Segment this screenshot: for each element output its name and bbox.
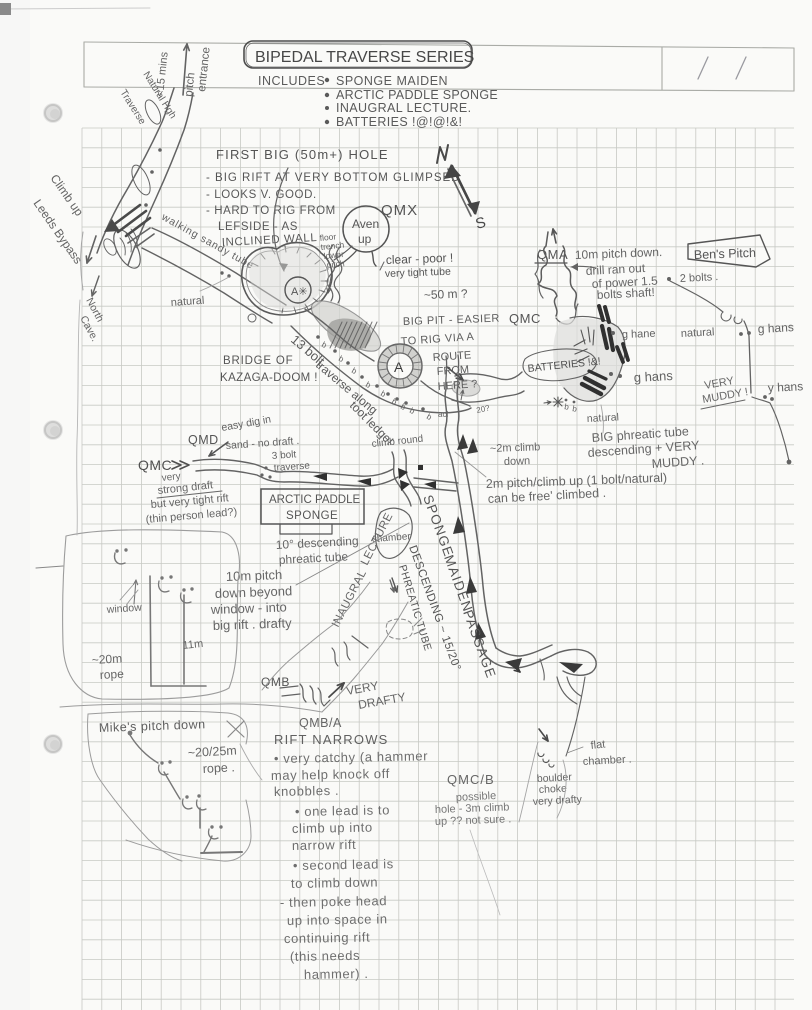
svg-text:A✳: A✳ bbox=[291, 286, 308, 298]
svg-text:KAZAGA-DOOM !: KAZAGA-DOOM ! bbox=[220, 372, 318, 384]
svg-text:2 bolts .: 2 bolts . bbox=[680, 271, 719, 285]
svg-text:INCLUDES: INCLUDES bbox=[258, 74, 325, 88]
svg-text:g hans: g hans bbox=[757, 320, 794, 336]
svg-text:LEFSIDE - AS: LEFSIDE - AS bbox=[218, 221, 298, 233]
svg-text:QMD: QMD bbox=[188, 433, 219, 447]
svg-text:• very catchy (a hammer: • very catchy (a hammer bbox=[274, 748, 428, 766]
svg-text:3 bolt: 3 bolt bbox=[271, 449, 296, 462]
svg-text:BATTERIES !@!@!&!: BATTERIES !@!@!&! bbox=[336, 115, 462, 129]
svg-text:hammer) .: hammer) . bbox=[304, 966, 369, 982]
svg-text:A: A bbox=[394, 359, 404, 375]
svg-text:down: down bbox=[504, 455, 531, 468]
svg-text:BRIDGE OF: BRIDGE OF bbox=[223, 355, 293, 367]
svg-text:• one lead is to: • one lead is to bbox=[295, 802, 390, 819]
svg-text:big rift . drafty: big rift . drafty bbox=[213, 615, 293, 633]
svg-text:may help knock off: may help knock off bbox=[271, 766, 390, 783]
svg-text:QMC: QMC bbox=[509, 311, 541, 326]
svg-text:RIFT NARROWS: RIFT NARROWS bbox=[274, 732, 389, 747]
svg-text:11m: 11m bbox=[182, 638, 204, 652]
svg-text:QMC: QMC bbox=[138, 457, 172, 473]
svg-text:QMX: QMX bbox=[381, 202, 418, 219]
svg-text:10m pitch: 10m pitch bbox=[226, 567, 283, 584]
svg-text:INAUGRAL LECTURE.: INAUGRAL LECTURE. bbox=[336, 101, 472, 115]
svg-text:(this needs: (this needs bbox=[290, 948, 360, 964]
svg-text:Aven: Aven bbox=[352, 217, 379, 231]
svg-text:~50 m ?: ~50 m ? bbox=[424, 286, 468, 302]
svg-text:chamber .: chamber . bbox=[583, 753, 632, 768]
svg-text:rope .: rope . bbox=[202, 760, 235, 776]
svg-text:~2m climb: ~2m climb bbox=[490, 441, 541, 455]
svg-text:rope: rope bbox=[99, 667, 124, 682]
svg-text:down beyond: down beyond bbox=[215, 583, 293, 601]
svg-text:natural: natural bbox=[681, 326, 715, 340]
svg-text:window: window bbox=[105, 602, 142, 617]
svg-text:window - into: window - into bbox=[210, 599, 287, 617]
svg-text:natural: natural bbox=[170, 295, 204, 309]
svg-text:flat: flat bbox=[590, 739, 606, 752]
svg-text:Ben's Pitch: Ben's Pitch bbox=[694, 246, 757, 262]
svg-text:ARCTIC PADDLE SPONGE: ARCTIC PADDLE SPONGE bbox=[336, 88, 498, 102]
svg-text:• second lead is: • second lead is bbox=[293, 856, 394, 873]
svg-text:- LOOKS V. GOOD.: - LOOKS V. GOOD. bbox=[206, 189, 317, 201]
svg-text:g hans: g hans bbox=[633, 368, 673, 385]
svg-text:narrow rift: narrow rift bbox=[292, 837, 357, 853]
svg-text:very tight tube: very tight tube bbox=[385, 266, 451, 280]
svg-text:~20m: ~20m bbox=[91, 651, 122, 667]
svg-text:QMB/A: QMB/A bbox=[299, 716, 342, 730]
svg-text:BIPEDAL TRAVERSE SERIES: BIPEDAL TRAVERSE SERIES bbox=[255, 49, 474, 66]
svg-text:clear - poor !: clear - poor ! bbox=[386, 251, 454, 267]
svg-text:- BIG RIFT AT VERY BOTTOM GLIM: - BIG RIFT AT VERY BOTTOM GLIMPSED bbox=[206, 172, 460, 184]
svg-text:g hane: g hane bbox=[622, 328, 656, 341]
svg-text:QMC/B: QMC/B bbox=[447, 772, 495, 787]
svg-text:knobbles .: knobbles . bbox=[274, 783, 340, 799]
svg-text:SPONGE: SPONGE bbox=[286, 510, 338, 522]
svg-text:FROM: FROM bbox=[436, 364, 469, 378]
svg-text:- HARD TO RIG FROM: - HARD TO RIG FROM bbox=[206, 205, 336, 217]
svg-text:up into space in: up into space in bbox=[287, 911, 388, 928]
svg-text:up: up bbox=[358, 232, 372, 246]
svg-text:continuing rift: continuing rift bbox=[284, 929, 371, 946]
svg-text:- then poke head: - then poke head bbox=[280, 893, 387, 910]
svg-text:ARCTIC PADDLE: ARCTIC PADDLE bbox=[269, 494, 360, 506]
svg-text:y hans: y hans bbox=[767, 379, 803, 395]
svg-text:to climb down: to climb down bbox=[291, 874, 379, 891]
svg-text:FIRST BIG (50m+) HOLE: FIRST BIG (50m+) HOLE bbox=[216, 147, 389, 162]
svg-text:climb up into: climb up into bbox=[292, 820, 373, 836]
svg-text:SPONGE MAIDEN: SPONGE MAIDEN bbox=[336, 74, 448, 88]
svg-text:~20/25m: ~20/25m bbox=[187, 743, 237, 760]
